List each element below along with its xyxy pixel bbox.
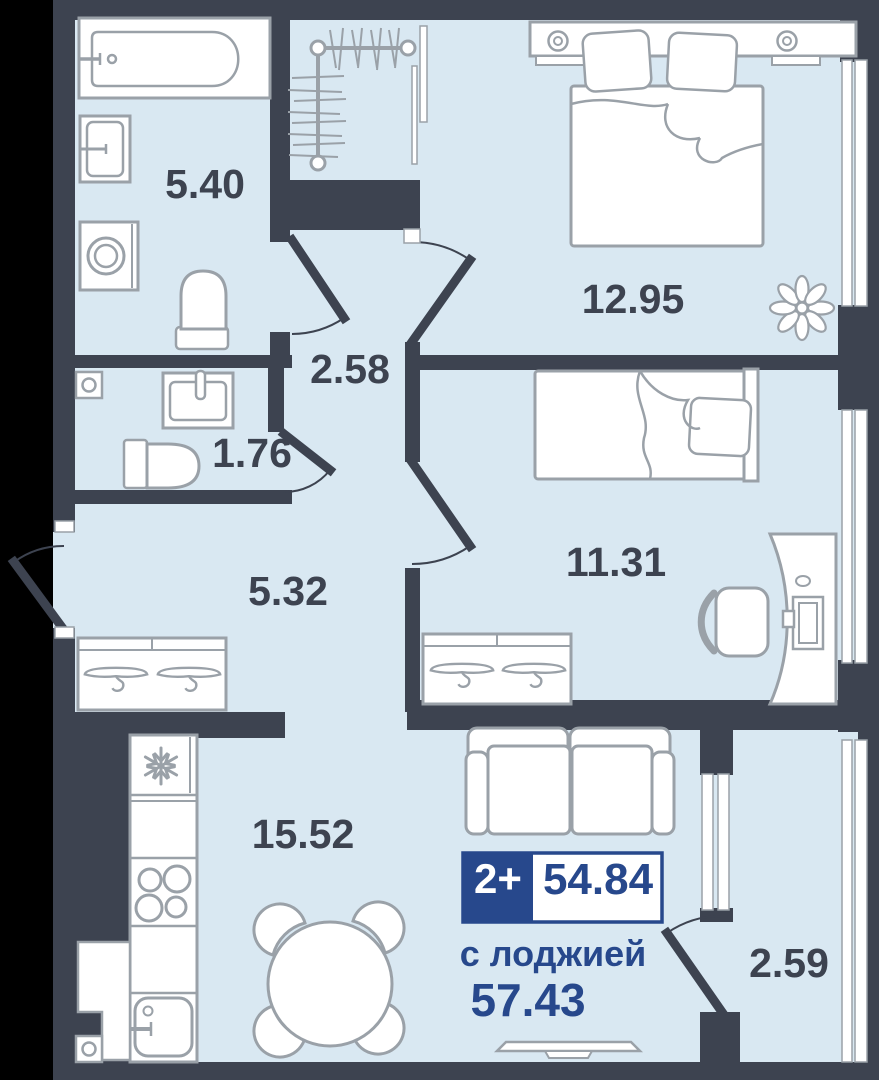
bathtub-icon: [79, 18, 270, 98]
badge-rooms-label: 2+: [474, 855, 522, 902]
nightstand-icon: [778, 32, 797, 51]
cabinet-icon: [80, 116, 130, 182]
wardrobe-hangers-icon: [423, 634, 571, 704]
dining-table-icon: [254, 902, 404, 1057]
area-badge: 2+ 54.84: [463, 853, 662, 922]
badge-area-value: 54.84: [543, 855, 654, 904]
washing-machine-icon: [80, 222, 138, 290]
label-hallway-area: 5.32: [248, 568, 328, 614]
vent-icon: [76, 1036, 102, 1062]
window-bedroom-main: [842, 60, 867, 306]
label-bedroom-main-area: 12.95: [582, 276, 685, 322]
label-bedroom-second-area: 11.31: [566, 539, 666, 585]
kitchen-sink-icon: [130, 998, 192, 1056]
wc-sink-icon: [163, 371, 233, 428]
plant-icon: [770, 276, 834, 340]
vent-icon: [76, 372, 102, 398]
duct-shaft: [76, 942, 130, 1062]
label-bathroom-area: 5.40: [165, 161, 245, 207]
kitchen-unit: [130, 735, 197, 1062]
label-inner-hall-area: 2.58: [310, 346, 390, 392]
wardrobe-hangers-icon: [78, 638, 226, 710]
caption-with-loggia: с лоджией: [460, 933, 647, 974]
label-kitchen-living-area: 15.52: [252, 811, 355, 857]
single-bed-icon: [535, 369, 758, 481]
sofa-icon: [466, 728, 674, 834]
toilet-icon: [176, 271, 228, 349]
wc-toilet-icon: [124, 440, 199, 488]
caption-total-area: 57.43: [470, 974, 585, 1026]
window-bedroom-second: [842, 410, 867, 663]
nightstand-icon: [549, 32, 568, 51]
label-wc-area: 1.76: [212, 430, 292, 476]
label-loggia-area: 2.59: [749, 940, 829, 986]
window-loggia-outer: [842, 740, 867, 1062]
floor-plan: 5.40 1.76 2.58 5.32: [0, 0, 879, 1080]
